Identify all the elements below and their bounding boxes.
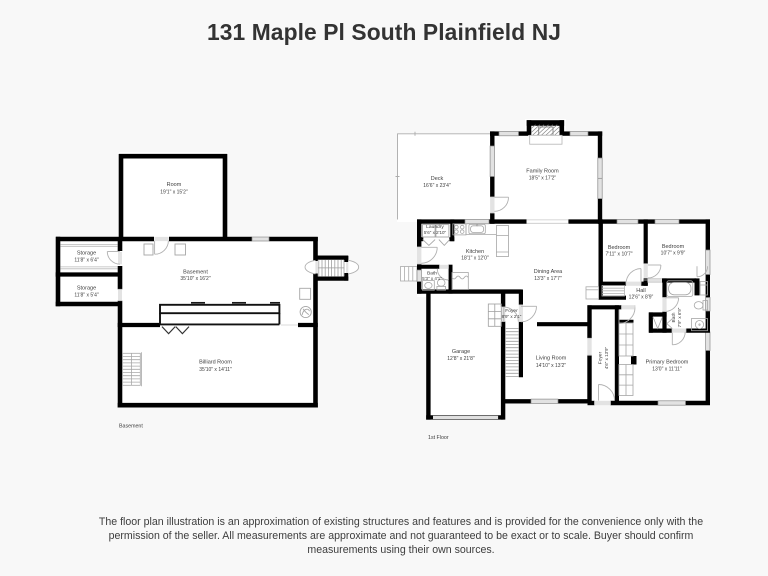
svg-text:Billiard Room: Billiard Room: [199, 360, 232, 366]
svg-text:16'6" x 23'4": 16'6" x 23'4": [423, 183, 451, 189]
svg-text:Deck: Deck: [431, 176, 444, 182]
svg-text:Garage: Garage: [452, 349, 470, 355]
svg-text:13'3" x 17'7": 13'3" x 17'7": [534, 276, 562, 282]
svg-text:Basement: Basement: [183, 270, 208, 276]
svg-text:18'5" x 17'2": 18'5" x 17'2": [529, 176, 557, 182]
svg-text:Kitchen: Kitchen: [466, 249, 484, 255]
svg-text:Family Room: Family Room: [526, 169, 559, 175]
svg-text:7'11" x 10'7": 7'11" x 10'7": [605, 252, 632, 258]
svg-text:14'10" x 13'2": 14'10" x 13'2": [536, 363, 566, 369]
svg-text:11'8" x 6'4": 11'8" x 6'4": [74, 258, 98, 264]
svg-text:1st Floor: 1st Floor: [428, 435, 449, 441]
svg-text:Bath: Bath: [671, 312, 677, 322]
svg-text:Storage: Storage: [77, 286, 96, 292]
svg-text:Primary Bedroom: Primary Bedroom: [646, 360, 689, 366]
svg-text:Room: Room: [167, 182, 182, 188]
svg-text:Storage: Storage: [77, 251, 96, 257]
svg-text:7'9" x 6'9": 7'9" x 6'9": [677, 307, 682, 327]
svg-text:Bedroom: Bedroom: [662, 244, 685, 250]
svg-text:5'3" x 4'1": 5'3" x 4'1": [422, 276, 442, 281]
svg-text:12'6" x 8'9": 12'6" x 8'9": [629, 295, 654, 301]
svg-text:10'7" x 9'9": 10'7" x 9'9": [661, 251, 686, 257]
svg-text:11'8" x 5'4": 11'8" x 5'4": [74, 293, 98, 299]
svg-text:Foyer: Foyer: [598, 351, 604, 364]
svg-text:4'6" x 13'9": 4'6" x 13'9": [604, 347, 609, 370]
svg-text:Dining Area: Dining Area: [534, 269, 563, 275]
svg-text:19'1" x 15'2": 19'1" x 15'2": [160, 190, 188, 196]
svg-text:5'6" x 2'10": 5'6" x 2'10": [424, 230, 447, 235]
svg-text:Hall: Hall: [636, 288, 645, 294]
svg-text:13'0" x 11'11": 13'0" x 11'11": [652, 367, 682, 373]
svg-text:Bedroom: Bedroom: [608, 245, 631, 251]
svg-text:35'10" x 14'11": 35'10" x 14'11": [199, 367, 232, 373]
svg-text:18'1" x 12'0": 18'1" x 12'0": [461, 255, 489, 261]
svg-text:12'8" x 21'8": 12'8" x 21'8": [447, 356, 475, 362]
svg-text:Living Room: Living Room: [536, 356, 567, 362]
svg-text:35'10" x 16'2": 35'10" x 16'2": [180, 276, 210, 282]
svg-text:8'9" x 2'1": 8'9" x 2'1": [502, 314, 522, 319]
svg-text:Basement: Basement: [119, 424, 143, 430]
